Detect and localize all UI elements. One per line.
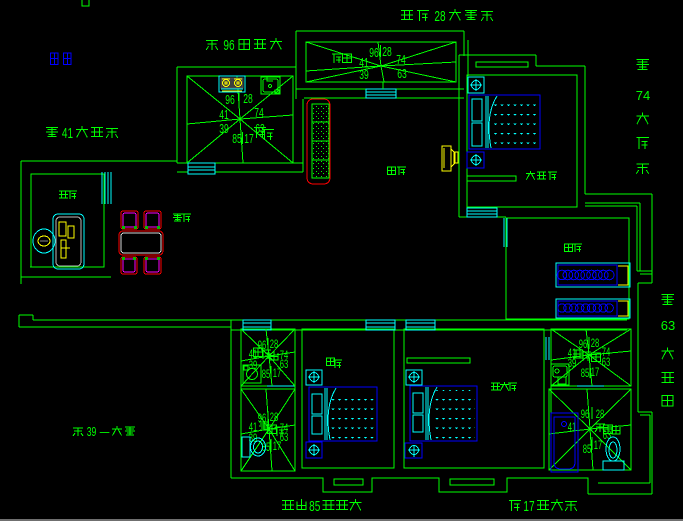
svg-text:17: 17 [523, 498, 534, 515]
svg-text:96: 96 [581, 409, 590, 421]
svg-text:41: 41 [62, 125, 73, 142]
svg-text:74: 74 [636, 88, 650, 103]
svg-text:85: 85 [583, 444, 592, 456]
svg-text:28: 28 [243, 92, 253, 106]
svg-text:85: 85 [309, 498, 320, 515]
svg-text:74: 74 [254, 106, 264, 120]
svg-text:28: 28 [434, 8, 445, 25]
svg-text:74: 74 [396, 53, 406, 67]
svg-text:63: 63 [661, 318, 675, 333]
svg-text:28: 28 [596, 409, 605, 421]
svg-text:17: 17 [273, 368, 282, 380]
svg-text:85: 85 [232, 132, 242, 146]
svg-text:17: 17 [594, 440, 603, 452]
svg-text:39: 39 [87, 424, 97, 439]
svg-text:41: 41 [219, 108, 229, 122]
svg-text:63: 63 [397, 67, 407, 81]
svg-text:96: 96 [579, 339, 588, 351]
svg-text:28: 28 [591, 338, 600, 350]
svg-text:28: 28 [270, 412, 279, 424]
svg-text:—: — [100, 424, 110, 439]
svg-text:96: 96 [369, 46, 379, 60]
svg-text:63: 63 [602, 357, 611, 369]
svg-text:85: 85 [262, 369, 271, 381]
svg-text:96: 96 [223, 37, 234, 54]
svg-text:63: 63 [603, 430, 612, 442]
svg-text:17: 17 [273, 441, 282, 453]
svg-text:96: 96 [225, 93, 235, 107]
svg-text:39: 39 [359, 68, 369, 82]
svg-text:39: 39 [219, 122, 229, 136]
svg-text:17: 17 [244, 132, 254, 146]
svg-text:28: 28 [270, 339, 279, 351]
svg-text:85: 85 [581, 368, 590, 380]
svg-text:17: 17 [591, 367, 600, 379]
svg-text:85: 85 [262, 442, 271, 454]
svg-text:28: 28 [382, 45, 392, 59]
svg-text:96: 96 [258, 413, 267, 425]
